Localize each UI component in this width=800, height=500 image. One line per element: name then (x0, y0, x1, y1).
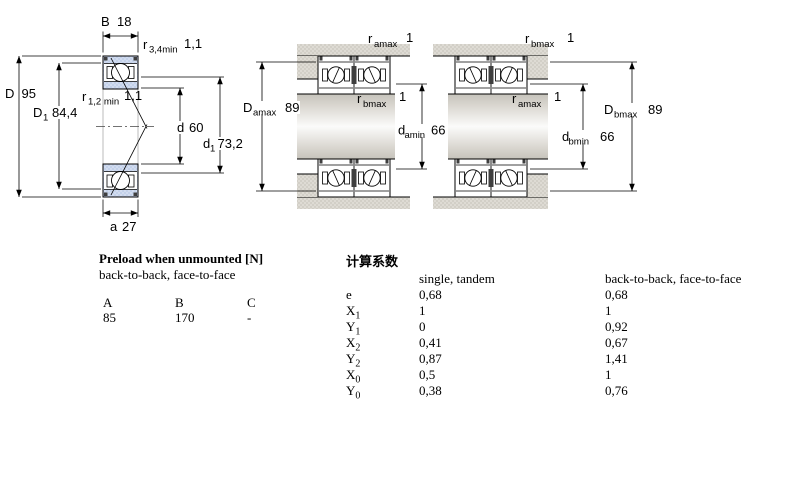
housing-bottom (433, 197, 548, 209)
label-rbmax-symbol: r (525, 31, 530, 46)
factor-value-single-tandem: 0,41 (419, 335, 442, 351)
factor-value-paired: 1 (605, 303, 612, 319)
dim-a-value: 27 (122, 219, 136, 234)
dim-Damax-subscript: amax (253, 108, 276, 119)
housing-bottom (297, 197, 410, 209)
factor-row: X00,51 (0, 367, 800, 383)
preload-title: Preload when unmounted [N] (99, 251, 263, 267)
dim-D-symbol: D (5, 86, 14, 101)
label-ramax-value: 1 (406, 30, 413, 45)
dim-Dbmax-subscript: bmax (614, 110, 637, 121)
housing-shoulder-top (527, 56, 548, 79)
factor-row: e0,680,68 (0, 287, 800, 303)
label-rbmax-subscript: bmax (363, 99, 386, 110)
back-to-back-arrangement: D amax 89 d amin 66 r amax 1 r bmax 1 (241, 30, 445, 209)
factors-title: 计算系数 (346, 251, 398, 270)
dim-r12-subscript: 1,2 min (88, 97, 119, 108)
dim-d-value: 60 (189, 120, 203, 135)
label-ramax-symbol: r (512, 91, 517, 106)
dim-d1-subscript: 1 (210, 144, 215, 155)
dim-damin-subscript: amin (405, 130, 426, 141)
factor-value-paired: 1,41 (605, 351, 628, 367)
bearing-drawing: B 18 D 95 D 1 84,4 d 60 d 1 73,2 (0, 0, 800, 250)
dim-r34-symbol: r (143, 37, 148, 52)
dim-Dbmax-symbol: D (604, 102, 613, 117)
dim-dbmin-subscript: bmin (569, 137, 590, 148)
factor-value-paired: 0,67 (605, 335, 628, 351)
label-rbmax-symbol: r (357, 91, 362, 106)
dim-d-symbol: d (177, 120, 184, 135)
label-ramax-value: 1 (554, 89, 561, 104)
factor-value-single-tandem: 0,68 (419, 287, 442, 303)
face-to-face-arrangement: d bmin 66 D bmax 89 r bmax 1 r amax 1 (433, 30, 663, 209)
factor-value-paired: 0,76 (605, 383, 628, 399)
dim-r34-subscript: 3,4min (149, 45, 178, 56)
dim-dbmin-value: 66 (600, 129, 614, 144)
factor-symbol: e (346, 287, 352, 303)
dim-r34-value: 1,1 (184, 36, 202, 51)
factor-row: Y20,871,41 (0, 351, 800, 367)
dim-d1-value: 73,2 (218, 136, 243, 151)
dim-r12-symbol: r (82, 89, 87, 104)
dim-Damax-value: 89 (285, 100, 299, 115)
preload-subtitle: back-to-back, face-to-face (99, 267, 235, 283)
ball-bottom (112, 172, 130, 190)
label-rbmax-value: 1 (567, 30, 574, 45)
dim-D1-value: 84,4 (52, 105, 77, 120)
label-ramax-subscript: amax (518, 99, 541, 110)
dim-B-value: 18 (117, 14, 131, 29)
factor-value-single-tandem: 0 (419, 319, 426, 335)
label-rbmax-subscript: bmax (531, 39, 554, 50)
factor-value-paired: 1 (605, 367, 612, 383)
dim-damin-value: 66 (431, 123, 445, 138)
housing-shoulder-top (297, 56, 318, 79)
factor-value-single-tandem: 0,5 (419, 367, 435, 383)
factor-value-paired: 0,92 (605, 319, 628, 335)
dim-r12-value: 1,1 (124, 88, 142, 103)
dim-D1-subscript: 1 (43, 113, 48, 124)
factor-row: X111 (0, 303, 800, 319)
dim-D-value: 95 (22, 86, 36, 101)
dim-Dbmax-value: 89 (648, 102, 662, 117)
factor-value-single-tandem: 1 (419, 303, 426, 319)
dim-B-symbol: B (101, 14, 110, 29)
ball-top (112, 64, 130, 82)
factor-value-single-tandem: 0,87 (419, 351, 442, 367)
dim-a-symbol: a (110, 219, 118, 234)
factor-row: X20,410,67 (0, 335, 800, 351)
label-ramax-subscript: amax (374, 39, 397, 50)
factor-row: Y100,92 (0, 319, 800, 335)
factors-col2-header: back-to-back, face-to-face (605, 271, 741, 287)
factor-row: Y00,380,76 (0, 383, 800, 399)
dim-Damax-symbol: D (243, 100, 252, 115)
housing-shoulder-bottom (297, 174, 318, 197)
dim-D1-symbol: D (33, 105, 42, 120)
factor-value-single-tandem: 0,38 (419, 383, 442, 399)
factors-col1-header: single, tandem (419, 271, 495, 287)
factor-symbol: Y0 (346, 383, 360, 402)
single-bearing-cross-section: B 18 D 95 D 1 84,4 d 60 d 1 73,2 (5, 14, 244, 234)
label-ramax-symbol: r (368, 31, 373, 46)
housing-shoulder-bottom (527, 174, 548, 197)
factor-value-paired: 0,68 (605, 287, 628, 303)
label-rbmax-value: 1 (399, 89, 406, 104)
